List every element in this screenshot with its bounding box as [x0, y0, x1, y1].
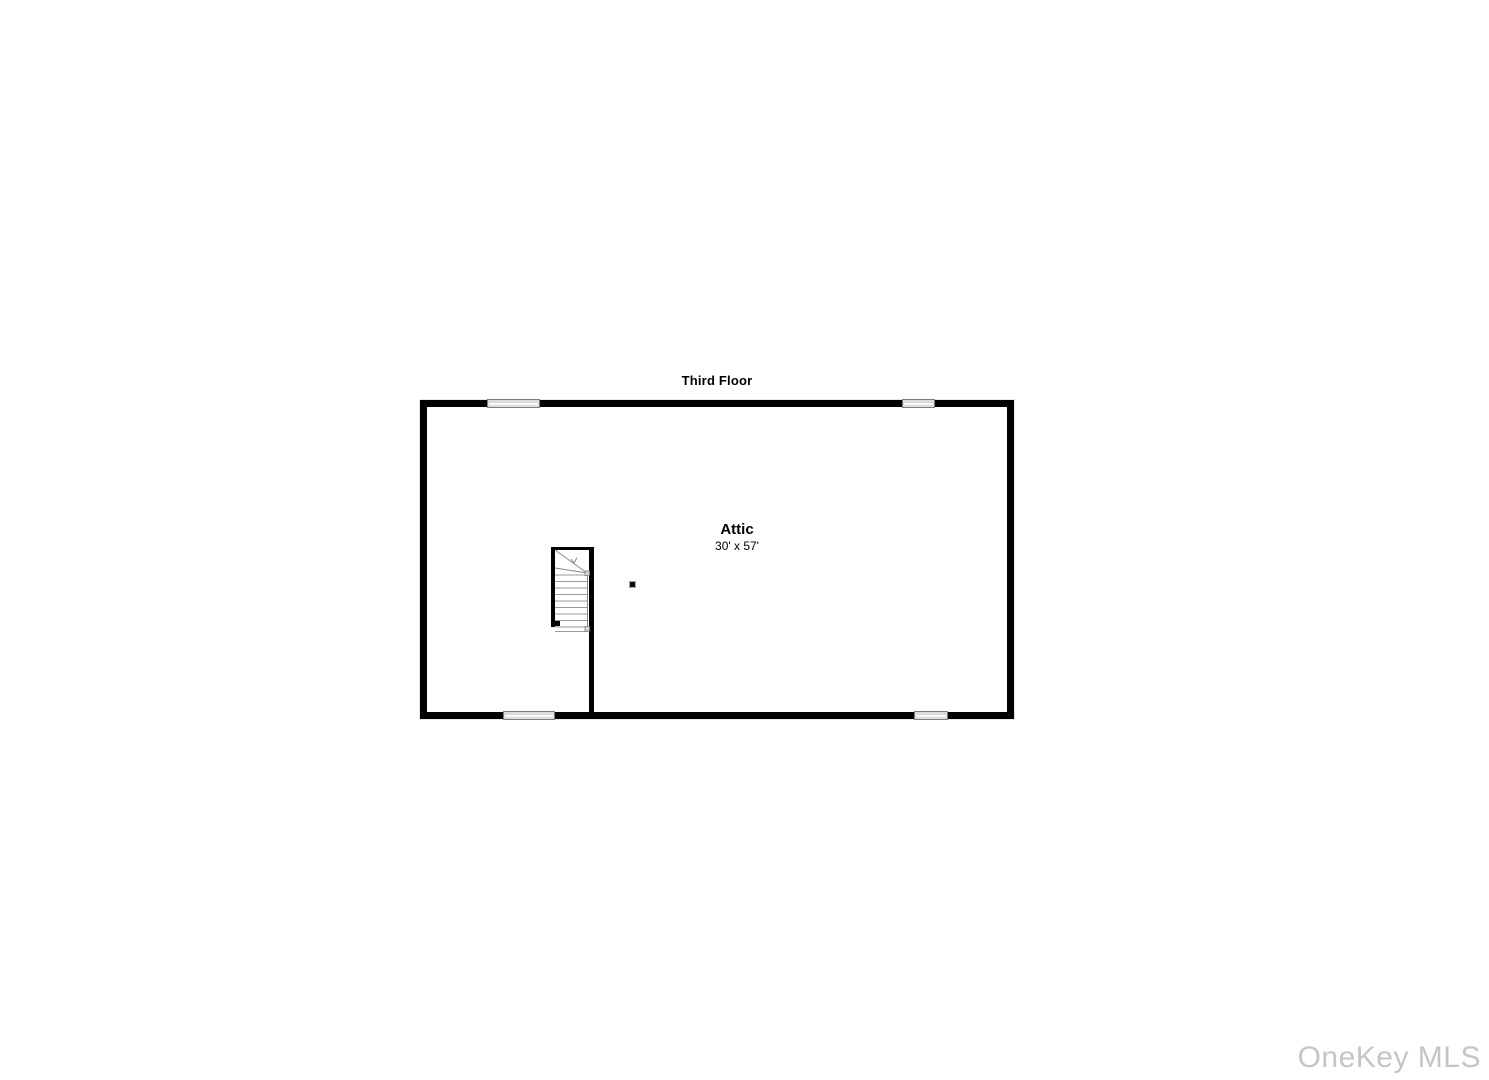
floorplan-page: Third Floor [0, 0, 1489, 1080]
window-bottom-left-icon [503, 711, 555, 720]
winder-staircase-icon [549, 545, 597, 637]
room-dimensions: 30' x 57' [637, 540, 837, 553]
window-top-right-icon [902, 399, 935, 408]
support-column-marker [629, 581, 636, 588]
room-name: Attic [637, 522, 837, 539]
attic-outer-walls [420, 400, 1014, 719]
room-label: Attic 30' x 57' [637, 522, 837, 553]
window-top-left-icon [487, 399, 540, 408]
window-bottom-right-icon [914, 711, 948, 720]
onekey-mls-watermark: OneKey MLS [1298, 1041, 1481, 1075]
floor-title: Third Floor [617, 373, 817, 388]
